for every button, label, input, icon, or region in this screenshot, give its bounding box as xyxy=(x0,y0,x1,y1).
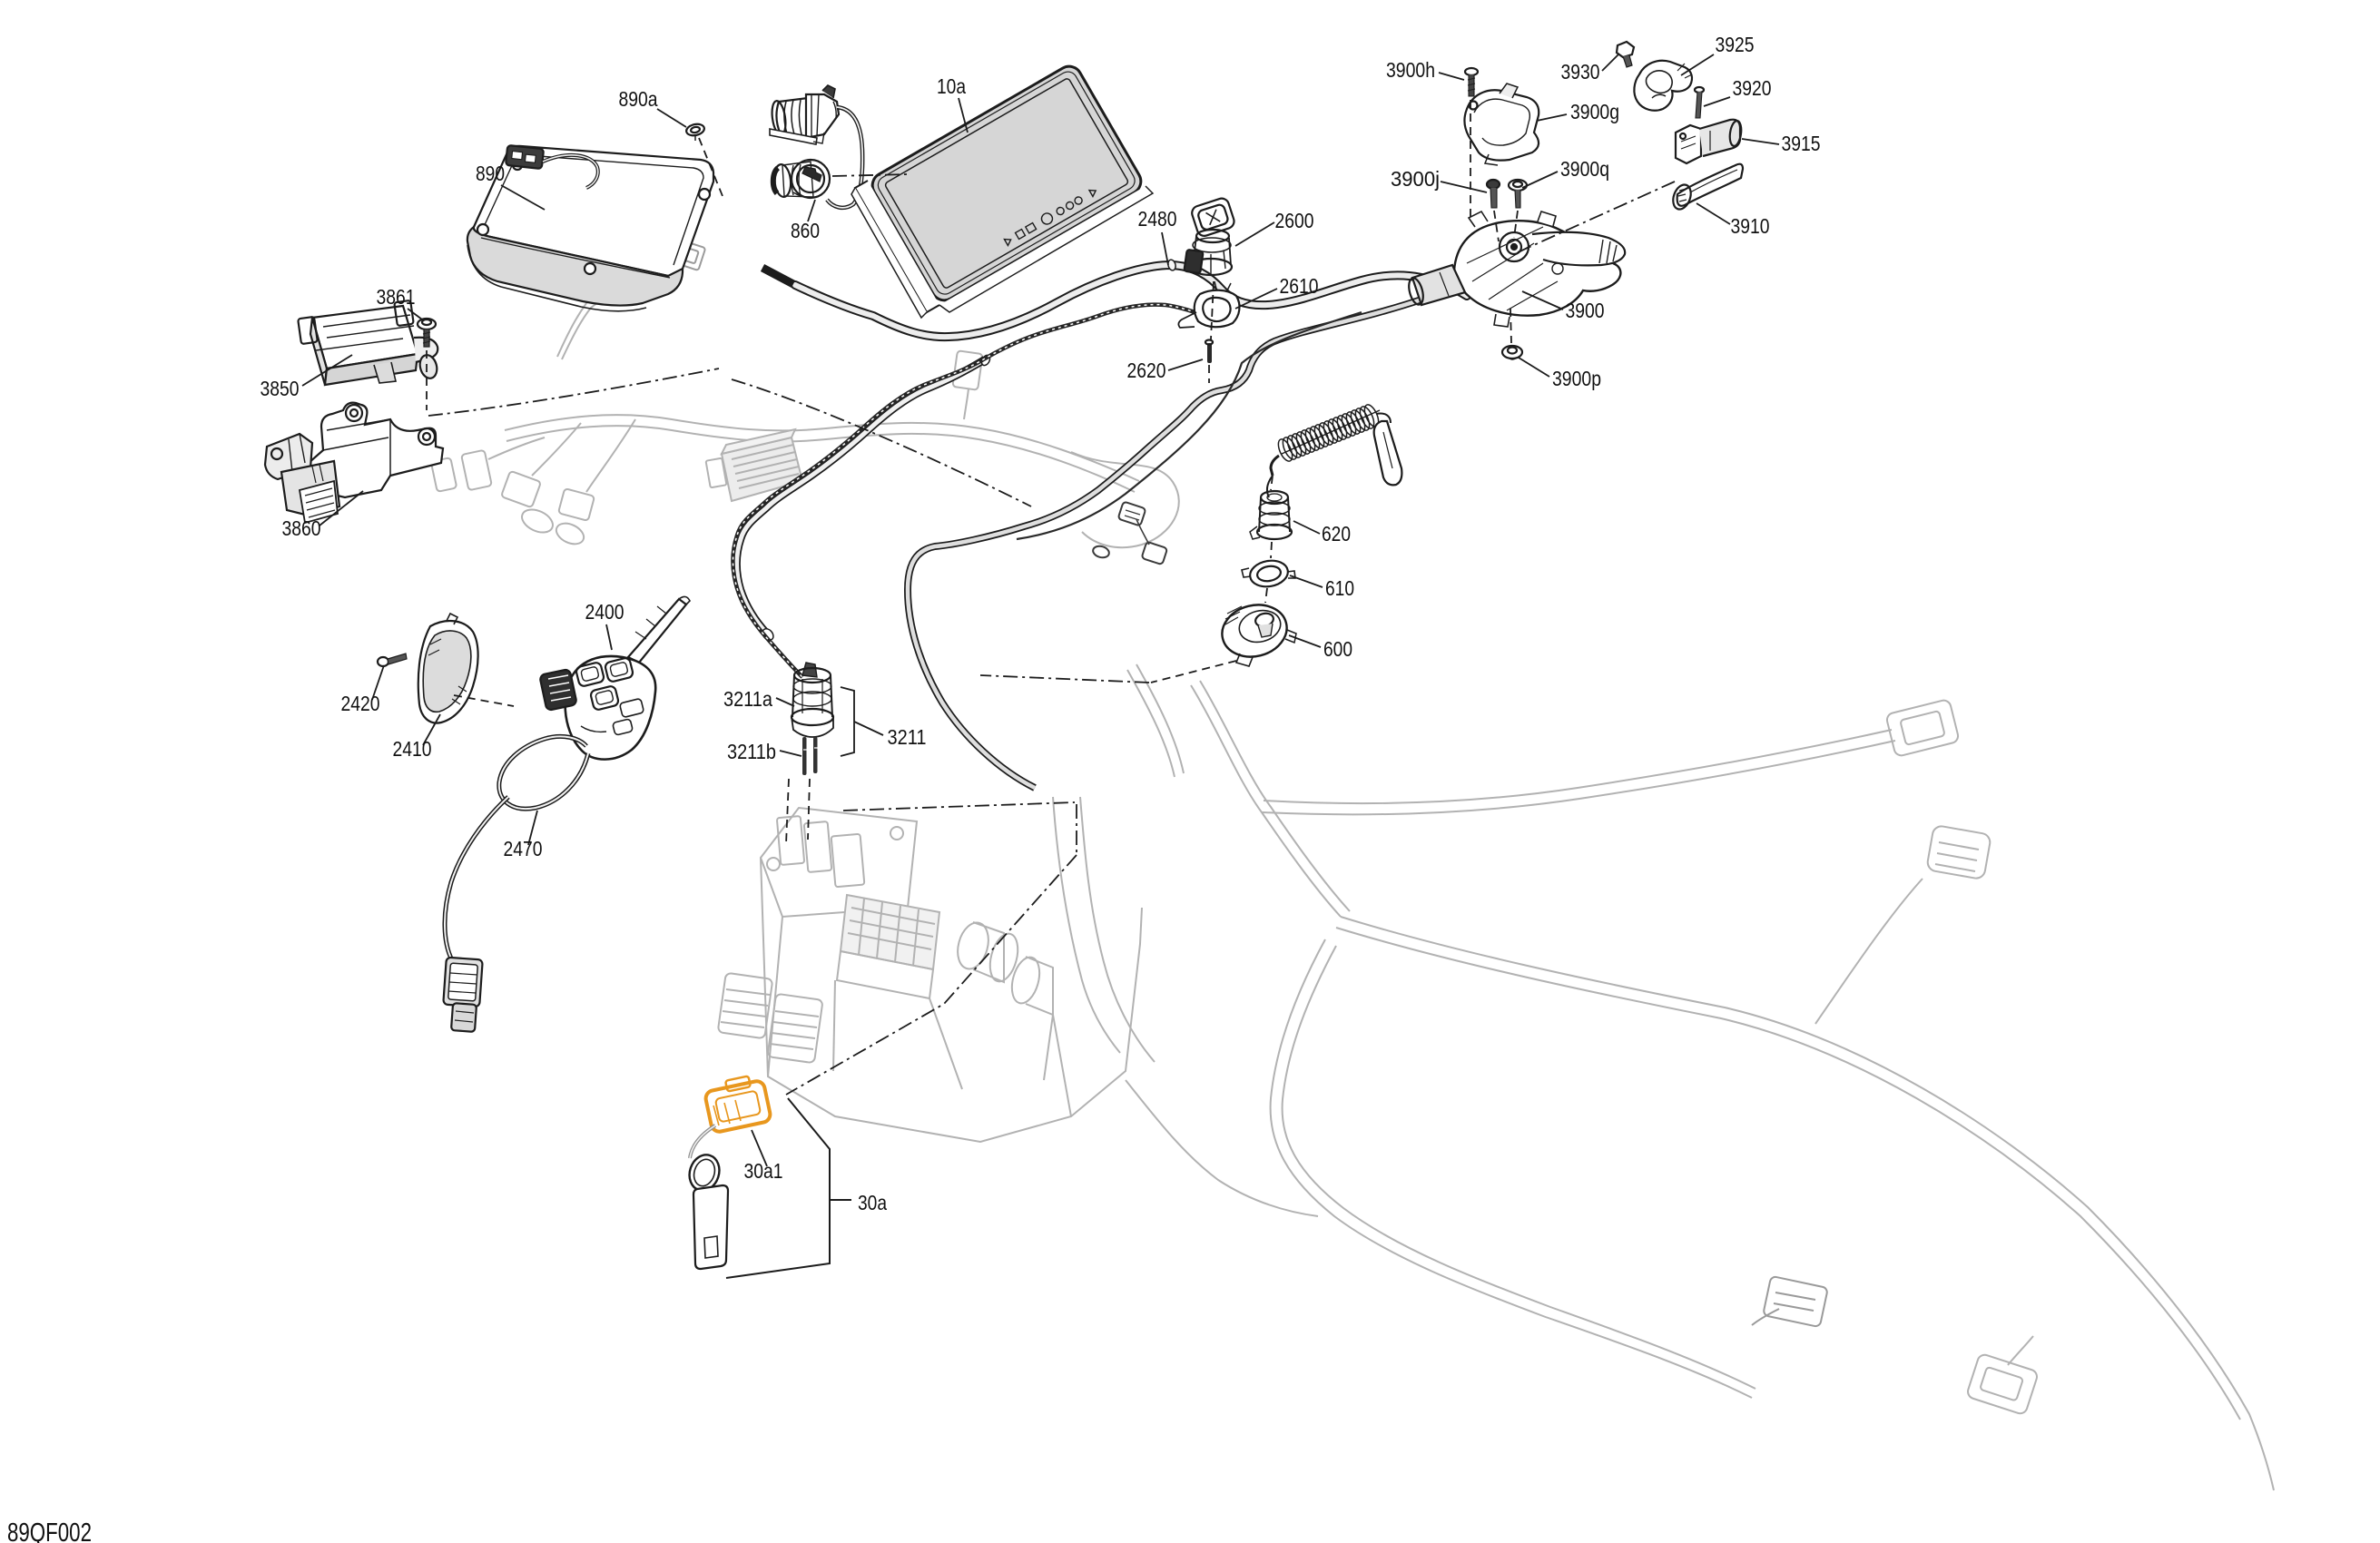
svg-text:10a: 10a xyxy=(937,74,966,98)
svg-text:890a: 890a xyxy=(619,87,658,111)
svg-text:3211a: 3211a xyxy=(723,687,772,711)
svg-text:3920: 3920 xyxy=(1733,76,1772,100)
svg-text:3900h: 3900h xyxy=(1386,58,1435,82)
svg-text:3860: 3860 xyxy=(282,516,321,540)
svg-text:3900g: 3900g xyxy=(1570,100,1619,123)
svg-text:2420: 2420 xyxy=(341,692,380,715)
svg-text:3850: 3850 xyxy=(261,377,300,400)
svg-text:2480: 2480 xyxy=(1138,207,1177,231)
svg-text:89QF002: 89QF002 xyxy=(7,1518,92,1543)
svg-text:2610: 2610 xyxy=(1280,274,1319,298)
svg-text:620: 620 xyxy=(1322,522,1351,545)
svg-text:860: 860 xyxy=(791,219,820,242)
svg-text:600: 600 xyxy=(1323,637,1352,661)
svg-text:3900: 3900 xyxy=(1566,299,1605,322)
svg-text:3910: 3910 xyxy=(1731,214,1770,238)
svg-text:3915: 3915 xyxy=(1782,132,1821,155)
svg-text:30a1: 30a1 xyxy=(744,1159,783,1183)
svg-text:3861: 3861 xyxy=(377,285,416,309)
svg-text:2400: 2400 xyxy=(585,600,625,624)
svg-text:2470: 2470 xyxy=(504,837,543,860)
svg-text:3211b: 3211b xyxy=(727,740,776,763)
svg-text:3930: 3930 xyxy=(1561,60,1600,84)
svg-text:2410: 2410 xyxy=(393,737,432,761)
svg-text:3900j: 3900j xyxy=(1391,167,1440,191)
svg-text:2600: 2600 xyxy=(1275,209,1314,232)
svg-text:890: 890 xyxy=(476,162,505,185)
svg-text:30a: 30a xyxy=(858,1191,887,1214)
svg-text:3925: 3925 xyxy=(1716,33,1755,56)
svg-text:2620: 2620 xyxy=(1127,359,1166,382)
svg-text:3900p: 3900p xyxy=(1552,367,1601,390)
svg-text:3900q: 3900q xyxy=(1560,157,1609,181)
svg-text:3211: 3211 xyxy=(888,725,927,749)
svg-text:610: 610 xyxy=(1325,576,1354,600)
